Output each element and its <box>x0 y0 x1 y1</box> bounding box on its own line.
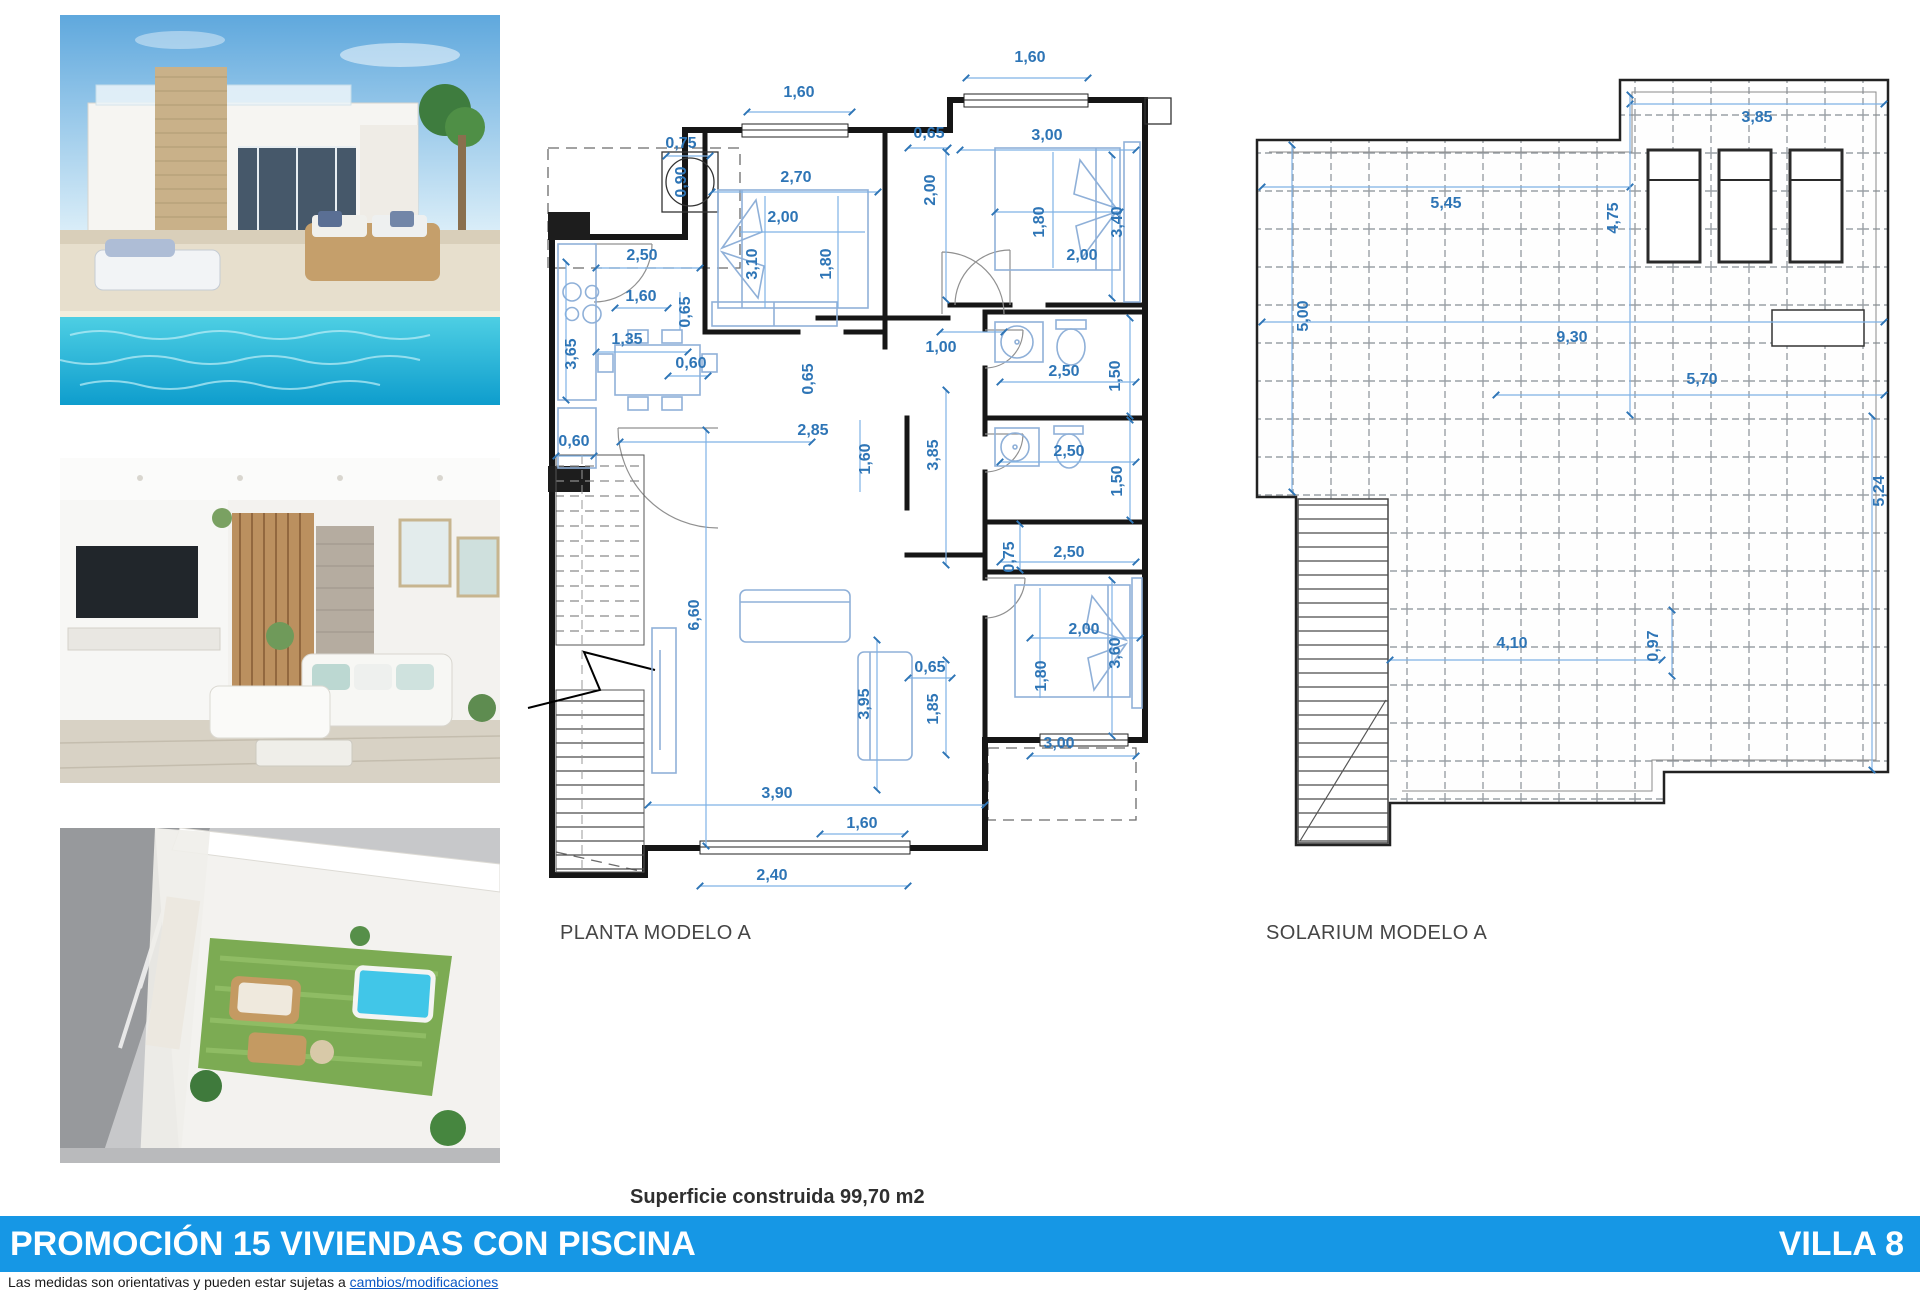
dimension-label: 4,75 <box>1605 202 1622 233</box>
dimension-label: 5,45 <box>1430 195 1461 212</box>
dimension-label: 1,80 <box>1031 206 1048 237</box>
dimension-label: 0,65 <box>913 125 944 142</box>
dimension-label: 3,95 <box>856 688 873 719</box>
dimension-label: 5,24 <box>1871 475 1888 506</box>
dimension-label: 2,00 <box>1068 621 1099 638</box>
dimension-label: 0,97 <box>1645 630 1662 661</box>
dimension-label: 6,60 <box>686 599 703 630</box>
dimension-label: 2,00 <box>767 209 798 226</box>
dimension-label: 4,10 <box>1496 635 1527 652</box>
dimension-label: 2,00 <box>1066 247 1097 264</box>
promotion-title: PROMOCIÓN 15 VIVIENDAS CON PISCINA <box>10 1225 696 1264</box>
dimension-label: 1,60 <box>783 84 814 101</box>
dimension-label: 0,65 <box>800 363 817 394</box>
dimension-label: 2,50 <box>1053 544 1084 561</box>
dimension-label: 0,60 <box>558 433 589 450</box>
dimension-label: 1,60 <box>1014 49 1045 66</box>
bottom-banner: PROMOCIÓN 15 VIVIENDAS CON PISCINA VILLA… <box>0 1216 1920 1272</box>
dimension-label: 0,65 <box>914 659 945 676</box>
dimension-label: 5,70 <box>1686 371 1717 388</box>
dimension-label: 1,50 <box>1109 465 1126 496</box>
dimension-label: 1,85 <box>925 693 942 724</box>
dimension-label: 2,50 <box>1053 443 1084 460</box>
dimension-label: 2,85 <box>797 422 828 439</box>
dimension-label: 2,50 <box>626 247 657 264</box>
dimension-label: 0,75 <box>665 135 696 152</box>
dimension-label: 0,75 <box>1001 541 1018 572</box>
solarium-modelo-a-plan: 3,855,454,755,009,305,705,244,100,97 <box>1257 80 1888 845</box>
dimension-label: 2,40 <box>756 867 787 884</box>
dimension-label: 1,60 <box>846 815 877 832</box>
sun-loungers <box>1648 150 1842 262</box>
dimension-label: 3,65 <box>563 338 580 369</box>
dimension-label: 2,50 <box>1048 363 1079 380</box>
dimension-label: 1,35 <box>611 331 642 348</box>
dimension-label: 3,10 <box>744 248 761 279</box>
floor-plans-canvas: 1,601,600,750,902,700,653,002,003,101,80… <box>0 0 1920 1280</box>
dimension-label: 2,70 <box>780 169 811 186</box>
solarium-plan-label: SOLARIUM MODELO A <box>1266 922 1487 945</box>
dimension-label: 3,85 <box>925 439 942 470</box>
dimension-label: 1,00 <box>925 339 956 356</box>
dimension-label: 3,60 <box>1107 637 1124 668</box>
dimension-label: 3,00 <box>1043 735 1074 752</box>
footnote-link[interactable]: cambios/modificaciones <box>350 1274 499 1290</box>
disclaimer-text: Las medidas son orientativas y pueden es… <box>8 1274 350 1290</box>
dimension-label: 3,85 <box>1741 109 1772 126</box>
roof-unit-box <box>1772 310 1864 346</box>
dimension-label: 9,30 <box>1556 329 1587 346</box>
staircase <box>528 455 655 872</box>
planta-plan-label: PLANTA MODELO A <box>560 922 751 945</box>
dimension-label: 1,80 <box>818 248 835 279</box>
villa-number: VILLA 8 <box>1779 1225 1904 1264</box>
dimension-label: 1,60 <box>857 443 874 474</box>
planta-modelo-a-plan: 1,601,600,750,902,700,653,002,003,101,80… <box>528 49 1171 886</box>
dimension-label: 3,00 <box>1031 127 1062 144</box>
dimension-label: 0,90 <box>673 166 690 197</box>
disclaimer-footnote: Las medidas son orientativas y pueden es… <box>8 1274 498 1290</box>
dimension-label: 1,50 <box>1107 360 1124 391</box>
solarium-stairs <box>1298 499 1388 843</box>
dimension-label: 5,00 <box>1295 300 1312 331</box>
dimension-label: 1,80 <box>1033 660 1050 691</box>
built-surface-note: Superficie construida 99,70 m2 <box>630 1186 925 1209</box>
dimension-label: 3,40 <box>1109 206 1126 237</box>
dimension-label: 0,65 <box>677 296 694 327</box>
dimension-label: 1,60 <box>625 288 656 305</box>
dimension-label: 2,00 <box>922 174 939 205</box>
dimension-label: 0,60 <box>675 355 706 372</box>
dimension-label: 3,90 <box>761 785 792 802</box>
